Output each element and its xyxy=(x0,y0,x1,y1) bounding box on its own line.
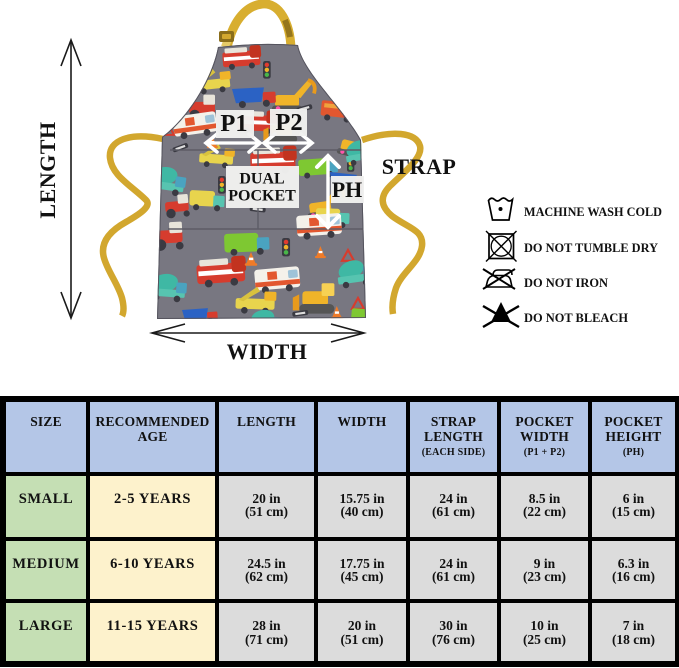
svg-text:POCKET: POCKET xyxy=(228,188,296,205)
svg-text:P2: P2 xyxy=(275,109,302,136)
svg-text:DO NOT TUMBLE DRY: DO NOT TUMBLE DRY xyxy=(524,240,659,255)
svg-text:DO NOT BLEACH: DO NOT BLEACH xyxy=(524,310,628,325)
svg-text:STRAP: STRAP xyxy=(382,154,457,179)
svg-text:WIDTH: WIDTH xyxy=(227,339,308,364)
svg-text:LENGTH: LENGTH xyxy=(35,121,60,218)
svg-text:PH: PH xyxy=(332,177,363,202)
svg-text:MACHINE WASH COLD: MACHINE WASH COLD xyxy=(524,204,662,219)
svg-text:P1: P1 xyxy=(220,110,247,137)
svg-text:DUAL: DUAL xyxy=(239,171,284,188)
svg-text:DO NOT IRON: DO NOT IRON xyxy=(524,275,609,290)
